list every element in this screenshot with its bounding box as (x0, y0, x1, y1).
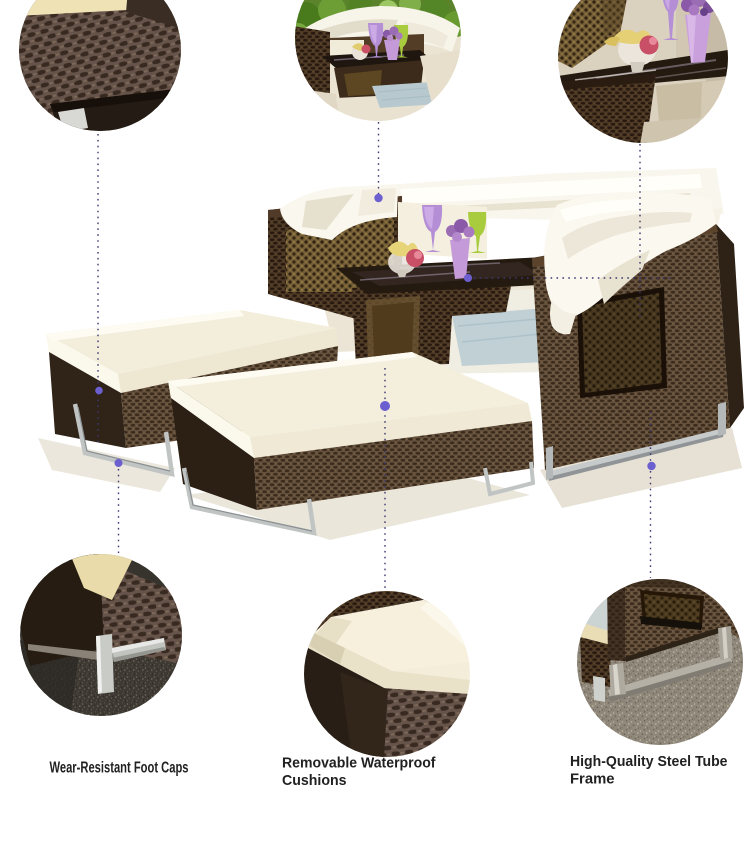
svg-text:Wear-Resistant Foot Caps: Wear-Resistant Foot Caps (50, 760, 189, 777)
svg-text:Frame: Frame (570, 772, 615, 788)
svg-text:High-Quality Steel Tube: High-Quality Steel Tube (570, 754, 728, 770)
svg-text:Cushions: Cushions (282, 773, 347, 789)
svg-text:Removable Waterproof: Removable Waterproof (282, 756, 436, 772)
